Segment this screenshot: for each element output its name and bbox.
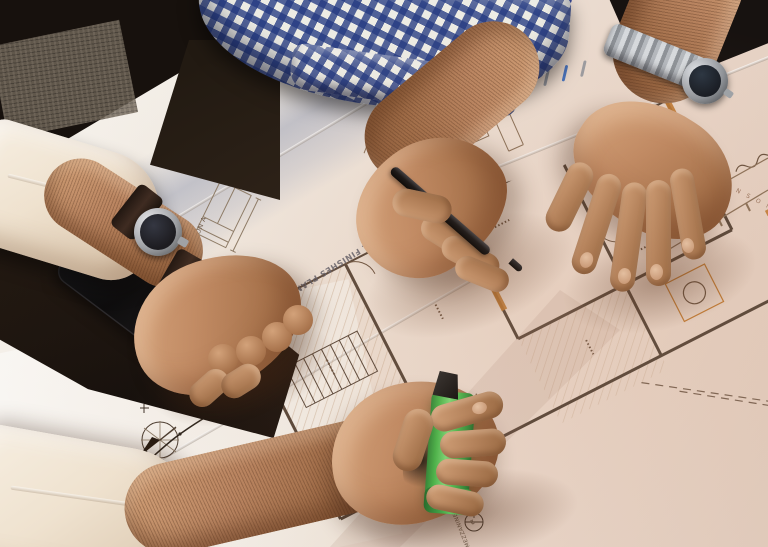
curled-finger — [435, 458, 499, 488]
photo-scene: WALL FINISHES PLAN SECTION A 600 R O B I… — [0, 0, 768, 547]
watch-dial — [689, 65, 721, 97]
fingernail — [650, 264, 663, 280]
schedule-color-mark — [562, 65, 569, 82]
curled-finger — [439, 428, 507, 460]
schedule-color-mark — [580, 60, 587, 77]
knuckle — [283, 305, 313, 335]
watch-dial — [140, 214, 176, 250]
